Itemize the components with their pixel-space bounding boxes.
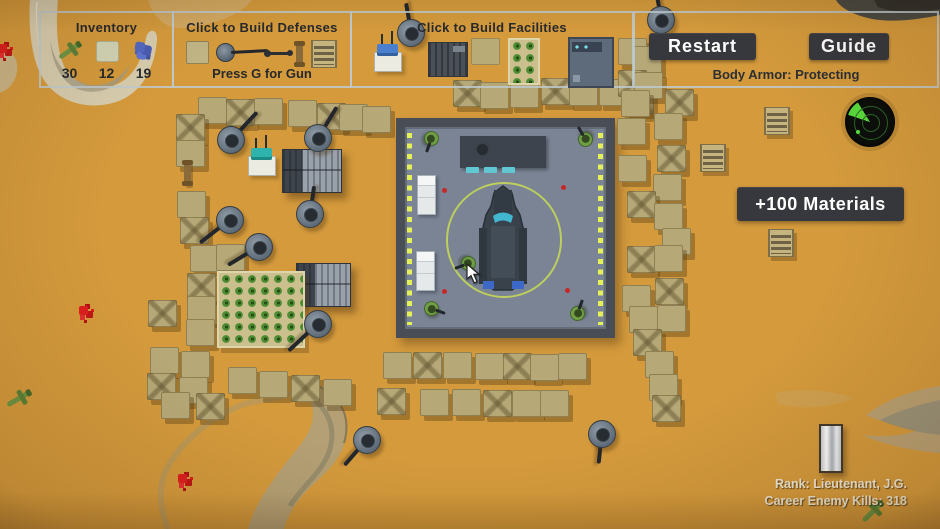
rank-line: Rank: Lieutenant, J.G. (765, 476, 907, 493)
build-sandbag-icon[interactable] (186, 41, 209, 64)
inventory-item-sandbags: 12 (92, 39, 122, 81)
game-screen: Inventory 30 12 19 Click to Build Defens… (0, 0, 940, 529)
kills-line: Career Enemy Kills: 318 (765, 493, 907, 510)
mouse-cursor (466, 263, 482, 285)
build-post-icon[interactable] (296, 42, 303, 66)
build-crate-icon[interactable] (471, 38, 500, 65)
inventory-item-scrap: 19 (129, 39, 159, 81)
build-barricade-icon[interactable] (311, 40, 337, 68)
build-facilities-panel: Click to Build Facilities (350, 11, 634, 88)
inventory-items: 30 12 19 (41, 39, 172, 81)
sandbag-icon (96, 41, 119, 62)
add-materials-button[interactable]: +100 Materials (737, 187, 904, 221)
plane-part-count: 30 (49, 65, 91, 81)
sandbag-count: 12 (86, 65, 128, 81)
radar-blip (856, 130, 860, 134)
scrap-count: 19 (123, 65, 165, 81)
scrap-icon (134, 41, 146, 53)
build-headquarters-icon[interactable] (568, 37, 614, 88)
guide-button[interactable]: Guide (809, 33, 889, 60)
body-armor-status: Body Armor: Protecting (635, 67, 937, 82)
build-defenses-panel: Click to Build Defenses Press G for Gun (172, 11, 352, 88)
radar-icon (845, 97, 895, 147)
radar-ring-inner (862, 114, 880, 132)
career-stats: Rank: Lieutenant, J.G. Career Enemy Kill… (765, 476, 907, 510)
inventory-panel: Inventory 30 12 19 (39, 11, 174, 88)
inventory-item-plane-parts: 30 (55, 39, 85, 81)
plane-part-icon (55, 38, 84, 65)
inventory-title: Inventory (41, 20, 172, 35)
build-gun-icon[interactable] (266, 48, 292, 58)
build-bunker-icon[interactable] (428, 42, 468, 77)
system-panel: Restart Guide Body Armor: Protecting (633, 11, 939, 88)
build-radio-station-icon[interactable] (374, 39, 402, 72)
restart-button[interactable]: Restart (649, 33, 756, 60)
build-facilities-title: Click to Build Facilities (352, 20, 632, 35)
gun-hotkey-hint: Press G for Gun (174, 66, 350, 81)
build-defenses-title: Click to Build Defenses (174, 20, 350, 35)
build-crop-field-icon[interactable] (508, 38, 540, 85)
